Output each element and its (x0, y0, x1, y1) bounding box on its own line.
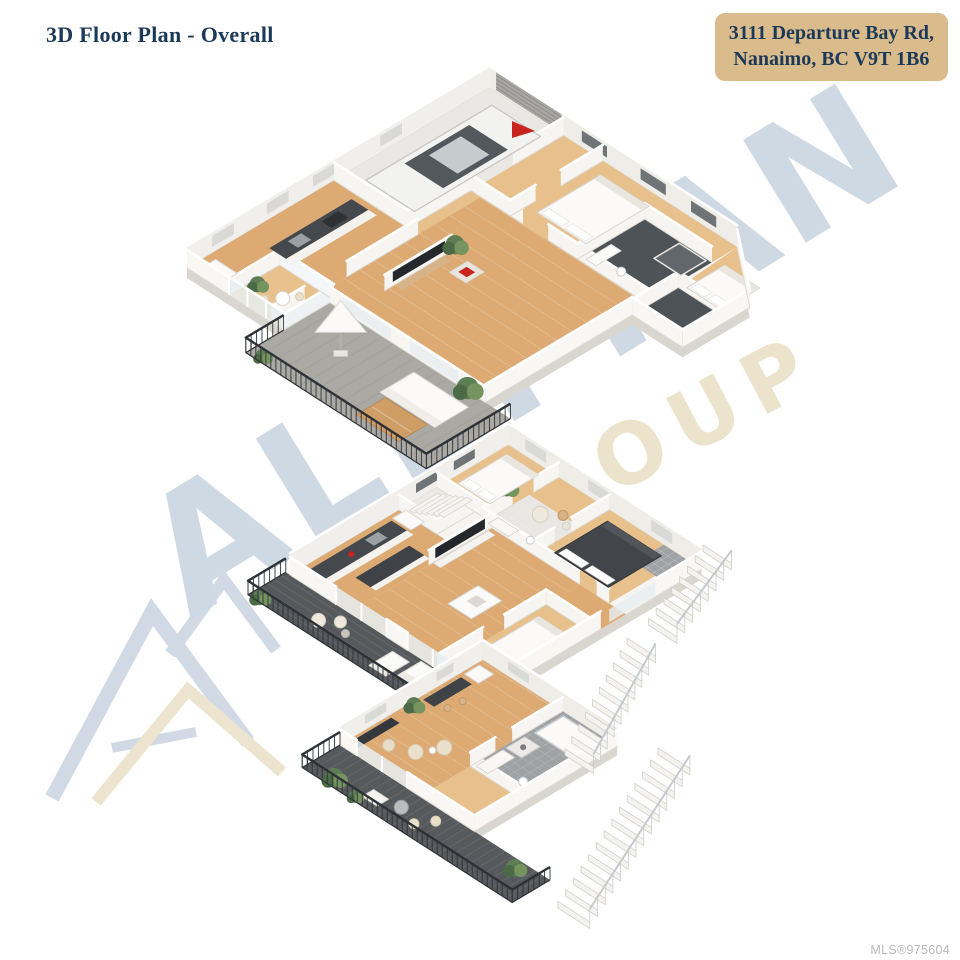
floor-3-lower (302, 640, 617, 903)
floor-plan-page: ALLYTAN GROUP 3D Floor Plan - Overall 31… (0, 0, 960, 960)
floor-1-main (187, 66, 760, 469)
mls-number: MLS®975604 (870, 943, 950, 957)
address-line-1: 3111 Departure Bay Rd, (729, 20, 934, 46)
page-title: 3D Floor Plan - Overall (46, 22, 274, 48)
address-badge: 3111 Departure Bay Rd, Nanaimo, BC V9T 1… (715, 13, 948, 81)
floor-plan-render (0, 0, 960, 960)
address-line-2: Nanaimo, BC V9T 1B6 (729, 46, 934, 72)
